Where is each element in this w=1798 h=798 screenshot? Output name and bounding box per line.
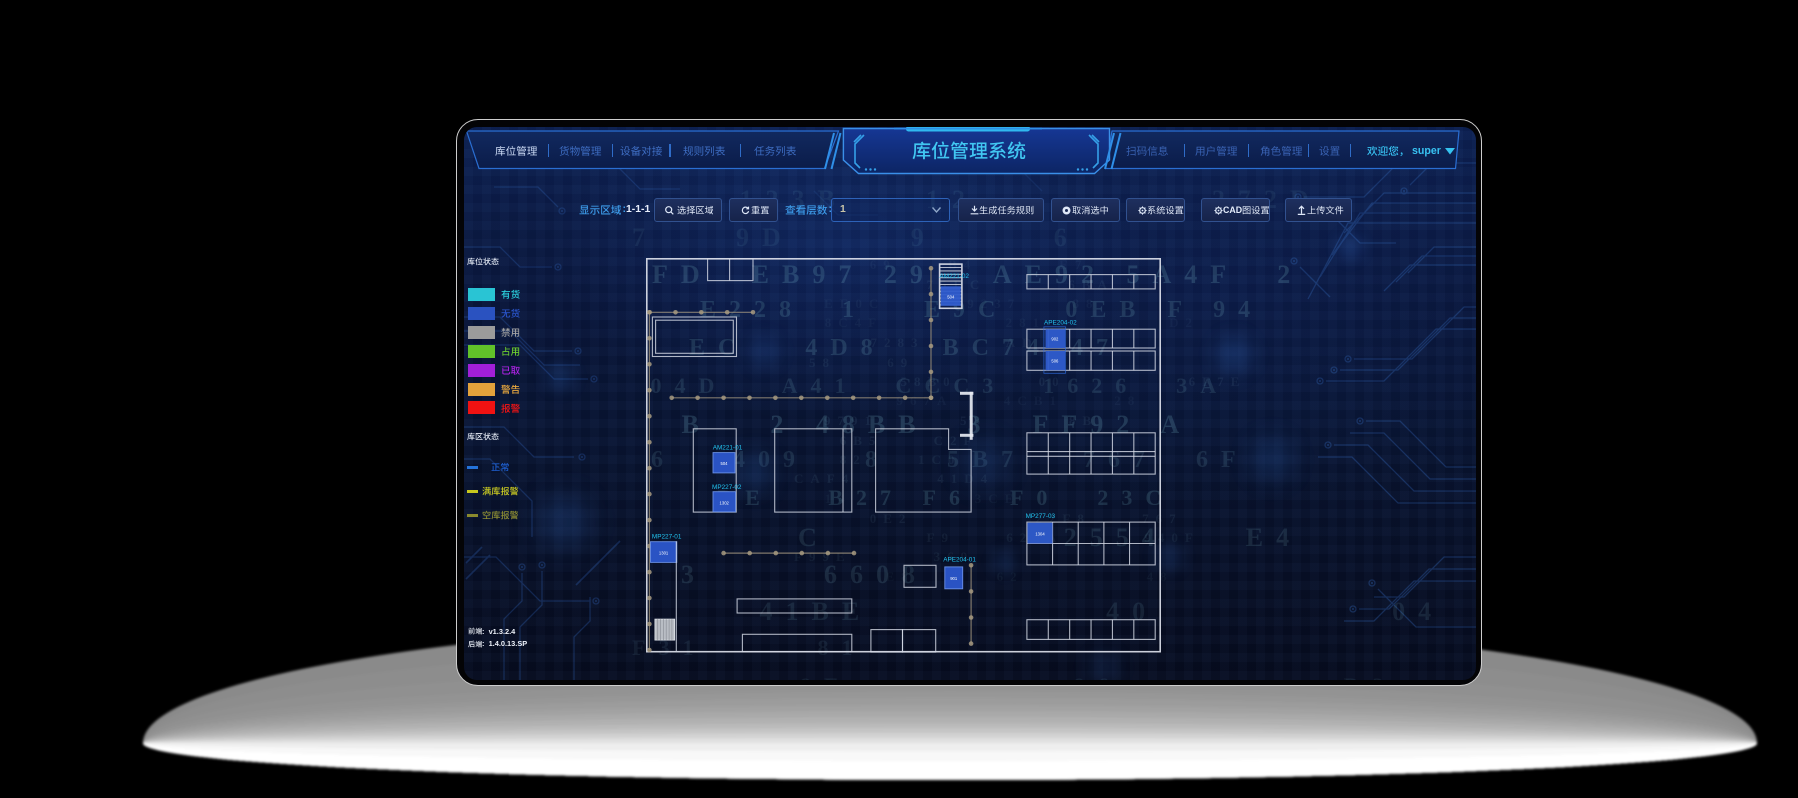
svg-text:APE204-02: APE204-02 <box>1044 319 1077 326</box>
svg-text:AM221-01: AM221-01 <box>713 444 743 451</box>
svg-text:1301: 1301 <box>659 550 669 555</box>
svg-text:AM221-02: AM221-02 <box>940 273 970 280</box>
svg-text:APE204-01: APE204-01 <box>943 556 976 563</box>
svg-text:1304: 1304 <box>1035 531 1045 536</box>
svg-text:506: 506 <box>1051 358 1059 363</box>
svg-text:504: 504 <box>947 294 955 299</box>
svg-text:902: 902 <box>1051 336 1059 341</box>
svg-text:MP227-02: MP227-02 <box>712 484 742 491</box>
svg-text:504: 504 <box>721 461 729 466</box>
svg-text:1302: 1302 <box>720 500 730 505</box>
svg-text:901: 901 <box>950 576 958 581</box>
svg-text:MP227-01: MP227-01 <box>652 533 682 540</box>
svg-text:MP277-03: MP277-03 <box>1026 513 1056 520</box>
